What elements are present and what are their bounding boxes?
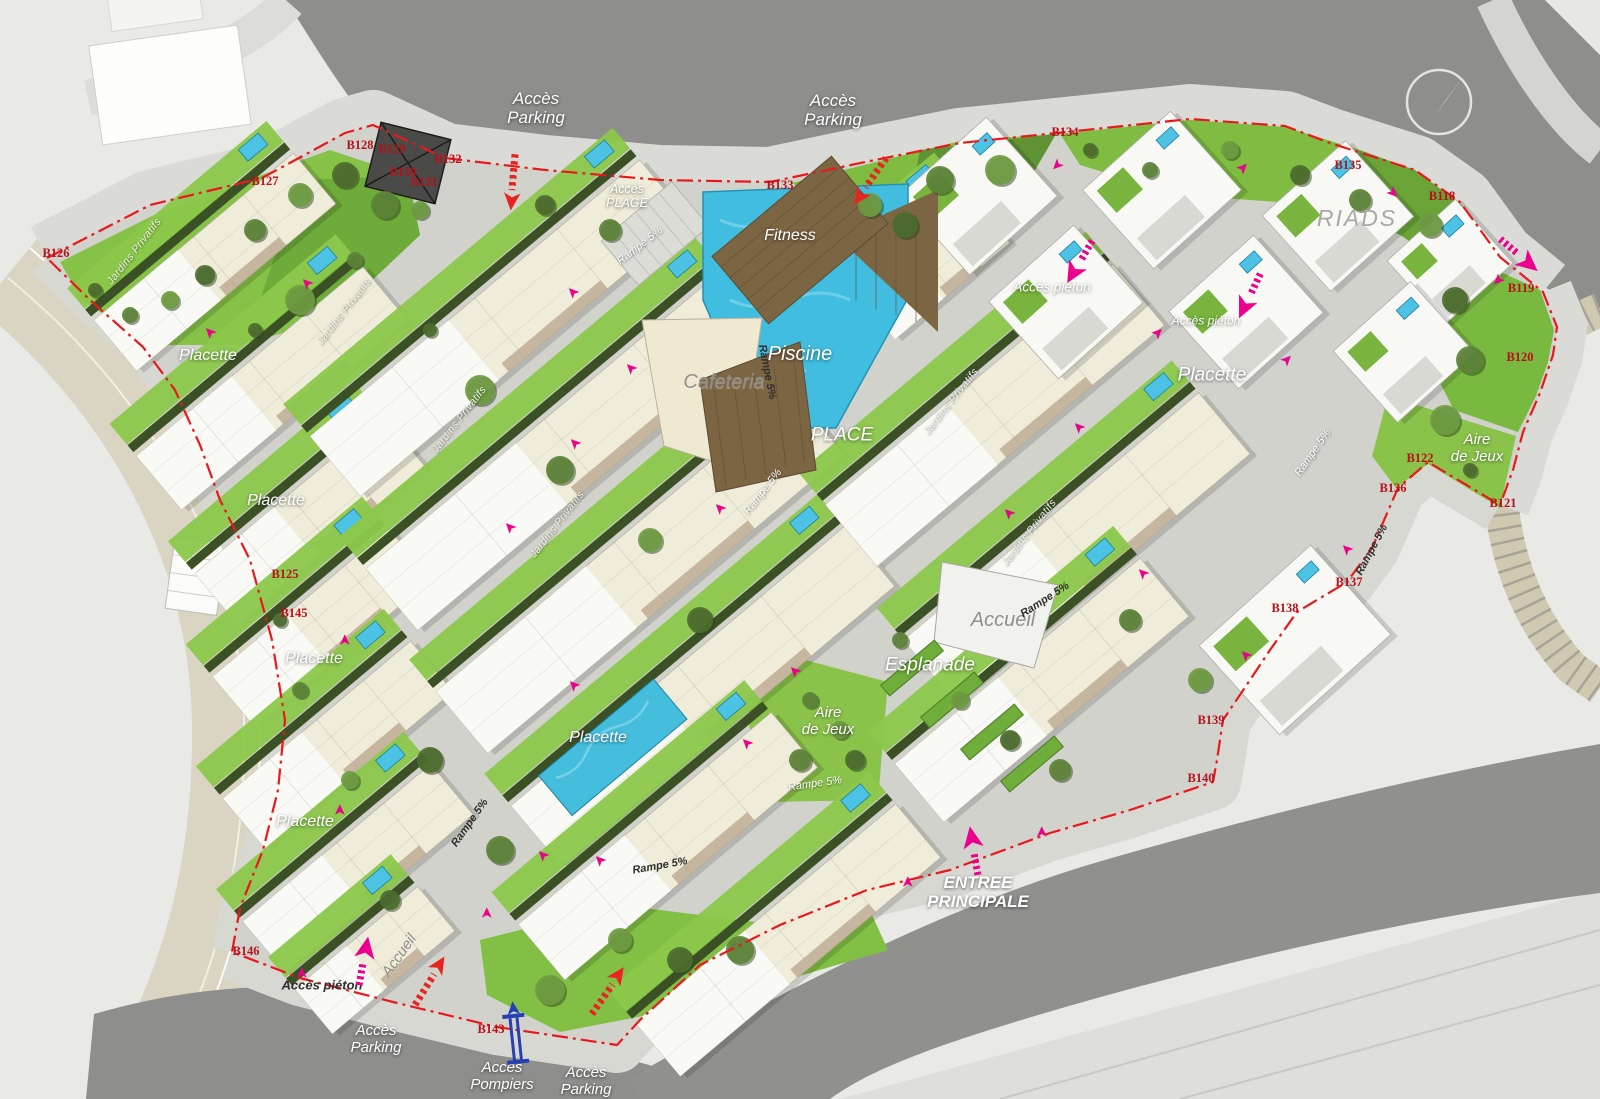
- building-code-B132: B132: [434, 152, 461, 166]
- pedestrian-arrow-icon-head: ➤: [1035, 826, 1050, 839]
- pedestrian-arrow-icon: ➤: [564, 675, 584, 695]
- pedestrian-main-arrow-icon: ➤: [1053, 233, 1106, 293]
- jardins-privatifs-6: Jardins Privatifs: [1000, 498, 1059, 569]
- accueil-sud: Accueil: [379, 931, 420, 980]
- building-code-B138: B138: [1271, 601, 1298, 615]
- jardins-privatifs-4: Jardins Privatifs: [528, 490, 587, 561]
- fire-access-symbol-icon: ➤: [501, 999, 530, 1065]
- pedestrian-arrow-icon-head: ➤: [999, 503, 1019, 523]
- building-code-B145: B145: [280, 606, 307, 620]
- pedestrian-arrow-icon-head: ➤: [564, 675, 584, 695]
- pedestrian-arrow-icon: ➤: [563, 282, 583, 302]
- placette-1: Placette: [179, 347, 237, 365]
- pedestrian-arrow-icon-head: ➤: [333, 804, 348, 817]
- rampe-2: Rampe 5%: [756, 344, 779, 401]
- building-code-B136: B136: [1379, 481, 1406, 495]
- building-code-B118: B118: [1429, 189, 1455, 203]
- accueil: Accueil: [971, 609, 1035, 631]
- placette-5: Placette: [569, 729, 627, 747]
- pedestrian-arrow-icon: ➤: [1069, 417, 1089, 437]
- acces-parking-s: Accès Parking: [561, 1065, 612, 1099]
- jardins-privatifs-3: Jardins Privatifs: [430, 385, 489, 456]
- pedestrian-main-arrow-icon-tail: [1247, 272, 1263, 297]
- vehicle-access-arrow-icon-head: ➤: [423, 949, 457, 981]
- building-code-B127: B127: [251, 174, 278, 188]
- pedestrian-arrow-icon: ➤: [338, 634, 353, 647]
- pedestrian-main-arrow-icon-tail: [355, 961, 366, 986]
- pedestrian-arrow-icon-head: ➤: [1383, 183, 1403, 203]
- rampe-1: Rampe 5%: [615, 224, 665, 267]
- pedestrian-arrow-icon: ➤: [295, 967, 310, 980]
- vehicle-access-arrow-icon-tail: [863, 156, 889, 190]
- jardins-privatifs-2: Jardins Privatifs: [315, 277, 374, 348]
- rampe-8: Rampe 5%: [1292, 427, 1333, 479]
- labels-overlay: Accès ParkingAccès ParkingAccès PLAGEFit…: [0, 0, 1600, 1099]
- vehicle-access-arrow-icon-tail: [589, 982, 615, 1016]
- pedestrian-arrow-icon: ➤: [1337, 539, 1357, 559]
- pedestrian-arrow-icon-head: ➤: [500, 517, 520, 537]
- pedestrian-main-arrow-icon-head: ➤: [347, 932, 383, 964]
- building-code-B140: B140: [1187, 771, 1214, 785]
- fire-access-symbol-icon-bar: [507, 1059, 529, 1065]
- building-code-B129: B129: [378, 142, 405, 156]
- north-compass-icon: [1399, 62, 1479, 142]
- pedestrian-arrow-icon: ➤: [1047, 155, 1067, 175]
- pedestrian-arrow-icon: ➤: [1133, 563, 1153, 583]
- vehicle-access-arrow-icon: ➤: [843, 151, 897, 213]
- piscine: Piscine: [768, 343, 832, 365]
- pedestrian-main-arrow-icon-tail: [970, 851, 981, 876]
- site-plan: Accès ParkingAccès ParkingAccès PLAGEFit…: [0, 0, 1600, 1099]
- pedestrian-arrow-icon-head: ➤: [338, 634, 353, 647]
- pedestrian-arrow-icon-head: ➤: [1069, 417, 1089, 437]
- placette-3: Placette: [285, 650, 343, 668]
- pedestrian-arrow-icon: ➤: [480, 907, 495, 920]
- acces-pieton-2: Accès piéton: [1172, 314, 1241, 327]
- pedestrian-arrow-icon-head: ➤: [590, 850, 610, 870]
- pedestrian-arrow-icon-head: ➤: [1337, 539, 1357, 559]
- pedestrian-arrow-icon-head: ➤: [1488, 270, 1508, 290]
- riads: RIADS: [1317, 206, 1397, 232]
- pedestrian-arrow-icon: ➤: [999, 503, 1019, 523]
- pedestrian-main-arrow-icon-tail: [1078, 239, 1096, 263]
- building-code-B125: B125: [271, 567, 298, 581]
- vehicle-access-arrow-icon-head: ➤: [601, 959, 635, 992]
- place: PLACE: [811, 424, 873, 445]
- pedestrian-arrow-icon: ➤: [1148, 323, 1168, 343]
- pedestrian-arrow-icon: ➤: [737, 733, 757, 753]
- pedestrian-arrow-icon-head: ➤: [737, 733, 757, 753]
- pedestrian-arrow-icon-head: ➤: [785, 661, 805, 681]
- pedestrian-arrow-icon: ➤: [1236, 645, 1256, 665]
- pedestrian-arrow-icon: ➤: [200, 322, 220, 342]
- placette-6: Placette: [1178, 364, 1247, 385]
- fitness: Fitness: [764, 227, 816, 245]
- pedestrian-arrow-icon: ➤: [590, 850, 610, 870]
- jardins-privatifs-1: Jardins Privatifs: [105, 217, 164, 288]
- building-code-B139: B139: [1197, 713, 1224, 727]
- pedestrian-arrow-icon-head: ➤: [1133, 563, 1153, 583]
- pedestrian-arrow-icon-head: ➤: [200, 322, 220, 342]
- building-code-B131: B131: [410, 175, 437, 189]
- pedestrian-arrow-icon: ➤: [1488, 270, 1508, 290]
- pedestrian-arrow-icon-head: ➤: [533, 845, 553, 865]
- rampe-9: Rampe 5%: [1354, 523, 1391, 578]
- rampe-5: Rampe 5%: [449, 797, 491, 850]
- acces-pompiers: Accès Pompiers: [470, 1060, 533, 1094]
- pedestrian-main-arrow-icon: ➤: [343, 932, 383, 988]
- vehicle-access-arrow-icon-head: ➤: [843, 180, 877, 213]
- placette-4: Placette: [276, 813, 334, 831]
- building-code-B135: B135: [1334, 158, 1361, 172]
- building-code-B126: B126: [42, 246, 69, 260]
- pedestrian-arrow-icon: ➤: [785, 661, 805, 681]
- vehicle-access-arrow-icon-tail: [509, 154, 519, 190]
- pedestrian-arrow-icon: ➤: [1035, 826, 1050, 839]
- pedestrian-main-arrow-icon-head: ➤: [1225, 289, 1265, 327]
- placette-2: Placette: [247, 492, 305, 510]
- building-code-B119: B119: [1508, 281, 1534, 295]
- building-code-B137: B137: [1335, 575, 1362, 589]
- building-code-B128: B128: [346, 138, 373, 152]
- pedestrian-main-arrow-icon: ➤: [953, 822, 993, 878]
- pedestrian-arrow-icon-head: ➤: [295, 967, 310, 980]
- pedestrian-arrow-icon-head: ➤: [710, 498, 730, 518]
- rampe-3: Rampe 5%: [741, 467, 784, 517]
- fire-access-symbol-icon-head: ➤: [502, 999, 524, 1018]
- aire-de-jeux-centre: Aire de Jeux: [802, 705, 855, 739]
- pedestrian-arrow-icon-head: ➤: [480, 907, 495, 920]
- rampe-4: Rampe 5%: [1018, 580, 1071, 621]
- pedestrian-arrow-icon-head: ➤: [1236, 645, 1256, 665]
- pedestrian-main-arrow-icon: ➤: [1225, 267, 1275, 327]
- pedestrian-arrow-icon: ➤: [1383, 183, 1403, 203]
- pedestrian-main-arrow-icon-head: ➤: [953, 822, 989, 854]
- pedestrian-arrow-icon-head: ➤: [297, 273, 317, 293]
- building-code-B122: B122: [1406, 451, 1433, 465]
- esplanade: Esplanade: [885, 654, 975, 675]
- jardins-privatifs-5: Jardins Privatifs: [922, 367, 981, 438]
- acces-parking-n: Accès Parking: [804, 91, 862, 129]
- rampe-6: Rampe 5%: [632, 855, 689, 877]
- pedestrian-arrow-icon-head: ➤: [901, 876, 916, 889]
- pedestrian-arrow-icon-head: ➤: [1233, 158, 1253, 178]
- pedestrian-arrow-icon-head: ➤: [1148, 323, 1168, 343]
- cafeteria: Cafeteria: [683, 371, 764, 393]
- building-code-B146: B146: [232, 944, 259, 958]
- building-code-B133: B133: [766, 178, 793, 192]
- pedestrian-arrow-icon: ➤: [901, 876, 916, 889]
- pedestrian-main-arrow-icon: ➤: [1490, 226, 1549, 283]
- fire-access-symbol-icon-shaft: [509, 1017, 523, 1060]
- pedestrian-arrow-icon-head: ➤: [1277, 350, 1297, 370]
- vehicle-access-arrow-icon: ➤: [581, 959, 635, 1021]
- building-code-B121: B121: [1489, 496, 1516, 510]
- pedestrian-arrow-icon: ➤: [500, 517, 520, 537]
- pedestrian-arrow-icon: ➤: [297, 273, 317, 293]
- acces-parking-nw: Accès Parking: [507, 89, 565, 127]
- acces-parking-sw: Accès Parking: [351, 1023, 402, 1057]
- pedestrian-arrow-icon-head: ➤: [1047, 155, 1067, 175]
- pedestrian-main-arrow-icon-tail: [1498, 236, 1521, 257]
- acces-plage: Accès PLAGE: [606, 182, 648, 210]
- pedestrian-arrow-icon: ➤: [710, 498, 730, 518]
- pedestrian-arrow-icon: ➤: [565, 433, 585, 453]
- pedestrian-main-arrow-icon-head: ➤: [1053, 254, 1094, 293]
- pedestrian-arrow-icon: ➤: [1277, 350, 1297, 370]
- pedestrian-arrow-icon: ➤: [621, 358, 641, 378]
- building-code-B143: B143: [477, 1022, 504, 1036]
- vehicle-access-arrow-icon-tail: [412, 972, 437, 1006]
- building-code-B130: B130: [389, 165, 416, 179]
- pedestrian-arrow-icon: ➤: [333, 804, 348, 817]
- acces-pieton-1: Accès piéton: [1013, 279, 1090, 294]
- pedestrian-arrow-icon: ➤: [533, 845, 553, 865]
- entree-principale: ENTREE PRINCIPALE: [927, 873, 1029, 911]
- acces-pieton-3: Accès piéton: [282, 979, 363, 994]
- vehicle-access-arrow-icon-head: ➤: [498, 189, 526, 213]
- building-code-B120: B120: [1506, 350, 1533, 364]
- aire-de-jeux-est: Aire de Jeux: [1451, 432, 1504, 466]
- pedestrian-arrow-icon-head: ➤: [563, 282, 583, 302]
- pedestrian-arrow-icon: ➤: [1233, 158, 1253, 178]
- building-code-B134: B134: [1051, 125, 1078, 139]
- pedestrian-arrow-icon-head: ➤: [621, 358, 641, 378]
- fire-access-symbol-icon-bar: [502, 1013, 524, 1019]
- pedestrian-arrow-icon-head: ➤: [565, 433, 585, 453]
- rampe-7: Rampe 5%: [787, 774, 843, 794]
- pedestrian-main-arrow-icon-head: ➤: [1509, 242, 1550, 284]
- vehicle-access-arrow-icon: ➤: [404, 949, 457, 1012]
- vehicle-access-arrow-icon: ➤: [498, 153, 529, 213]
